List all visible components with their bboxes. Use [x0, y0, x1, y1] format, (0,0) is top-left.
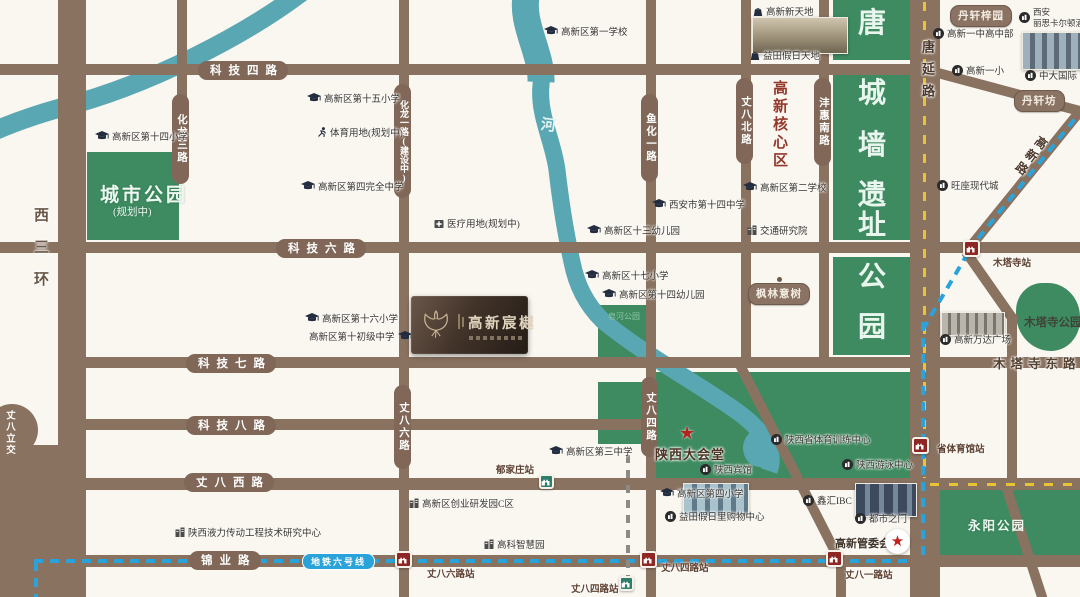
- poi-circle: 陕西游泳中心: [842, 457, 913, 471]
- poi-label: 益田假日里购物中心: [679, 509, 765, 523]
- poi-icon: [743, 182, 757, 192]
- metro-station-icon: [619, 576, 634, 591]
- metro-station-label: 丈八一路站: [845, 567, 893, 581]
- road-label-zhangbalijiao: 丈八立交: [2, 410, 16, 450]
- poi-label: 都市之门: [869, 511, 907, 525]
- river-char: 河: [540, 113, 558, 136]
- tangwall-park-char: 园: [833, 314, 911, 342]
- poi-label: 陕西游泳中心: [856, 457, 913, 471]
- poi-runner: 体育用地(规划中): [317, 125, 403, 139]
- poi-circle: 陕西省体育训练中心: [771, 432, 871, 446]
- poi-label: 陕西省体育训练中心: [785, 432, 871, 446]
- metro-station-label: 丈八四路站: [661, 560, 709, 574]
- poi-school: 高新区第十六小学: [305, 311, 398, 325]
- zhangbaxi-east-lane-dashes: [930, 483, 1080, 486]
- poi-label: 高科智慧园: [497, 537, 545, 551]
- poi-label: 高新区十三幼儿园: [604, 223, 680, 237]
- poi-icon: [409, 498, 419, 508]
- poi-circle: 鑫汇IBC: [803, 493, 852, 507]
- poi-icon: [855, 513, 866, 524]
- poi-school: 高新区第三中学: [549, 444, 633, 458]
- gaoxin-core-label: 高新核心区: [769, 80, 790, 170]
- metro-station-label: 郁家庄站: [496, 462, 534, 476]
- poi-bag: 高新新天地: [753, 4, 814, 18]
- poi-label: 旺座现代城: [951, 178, 999, 192]
- logo-seal-mark: [458, 314, 460, 329]
- poi-label: 高新区第十六小学: [322, 311, 398, 325]
- star-dahuitang-icon: ★: [679, 423, 695, 444]
- poi-label: 高新区创业研发园C区: [422, 496, 514, 510]
- poi-school: 高新区第四小学: [660, 486, 744, 500]
- poi-school: 高新区第十四小学: [95, 129, 188, 143]
- project-logo: 高新宸樾: [411, 296, 528, 354]
- poi-school: 高新区第一学校: [544, 24, 628, 38]
- poi-label: 高新新天地: [766, 4, 814, 18]
- poi-icon: [803, 495, 814, 506]
- poi-icon: [175, 527, 185, 537]
- poi-icon: [301, 181, 315, 191]
- ginkgo-leaf-icon: [419, 309, 453, 341]
- road-label-xisanhuan: 西三环: [30, 207, 51, 303]
- poi-label: 高新区第一学校: [561, 24, 628, 38]
- poi-label: 医疗用地(规划中): [447, 216, 520, 230]
- poi-icon: [700, 464, 711, 475]
- poi-label: 高新区第三中学: [566, 444, 633, 458]
- metro-station-label: 丈八四路站: [571, 581, 619, 595]
- logo-seal-mark: [462, 317, 464, 327]
- compound-badge: 丹轩坊: [1014, 90, 1065, 112]
- poi-icon: [652, 199, 666, 209]
- poi-bag: 益田假日天地: [750, 48, 820, 62]
- poi-label: 高新区第二学校: [760, 180, 827, 194]
- metro-station-label: 木塔寺站: [993, 255, 1031, 269]
- poi-school: 高新区十三幼儿园: [587, 223, 680, 237]
- logo-subtext: [469, 336, 525, 340]
- poi-icon: [940, 334, 951, 345]
- road-label: 丈八西路: [184, 473, 274, 492]
- poi-school: 高新区第四完全中学: [301, 179, 404, 193]
- road-label: 鱼化一路: [641, 94, 658, 182]
- metro6-jinye: [34, 559, 908, 563]
- road-label: 科技四路: [198, 61, 288, 80]
- metro-planned-line: [626, 455, 630, 577]
- metro-station-icon: [963, 240, 980, 257]
- poi-circle: 中大国际: [1025, 68, 1077, 82]
- yongyang-park-label: 永阳公园: [968, 515, 1026, 534]
- metro6-west-turn: [34, 562, 38, 597]
- poi-building: 高新区创业研发园C区: [409, 496, 514, 510]
- tangwall-park-char: 公: [833, 264, 911, 292]
- poi-icon: [317, 127, 327, 137]
- poi-circle: 都市之门: [855, 511, 907, 525]
- poi-building: 交通研究院: [747, 223, 808, 237]
- star-guanweihui-icon: ★: [885, 529, 910, 554]
- metro-station-icon: [912, 437, 929, 454]
- poi-icon: [771, 434, 782, 445]
- tangwall-park-char: 遗: [833, 182, 911, 210]
- poi-icon: [665, 511, 676, 522]
- poi-icon: [660, 488, 674, 498]
- road-label: 沣惠南路: [814, 78, 831, 166]
- poi-circle: 益田假日里购物中心: [665, 509, 765, 523]
- poi-school: 高新区第二学校: [743, 180, 827, 194]
- road-kejisi: [0, 64, 912, 75]
- road-interchange-area: [0, 445, 76, 597]
- poi-label: 高新区第十初级中学: [309, 329, 395, 343]
- poi-icon: [305, 313, 319, 323]
- poi-icon: [602, 289, 616, 299]
- poi-hospital: 医疗用地(规划中): [434, 216, 520, 230]
- tangwall-park-char: 址: [833, 212, 911, 240]
- poi-school: 西安市第十四中学: [652, 197, 745, 211]
- poi-icon: [747, 225, 757, 235]
- road-label: 科技六路: [276, 239, 366, 258]
- poi-label: 高新区第四完全中学: [318, 179, 404, 193]
- poi-label: 高新管委会: [835, 535, 890, 551]
- metro-station-label: 省体育馆站: [937, 441, 985, 455]
- road-label: 锦业路: [189, 551, 261, 570]
- poi-none: 高新管委会: [835, 535, 890, 551]
- metro-station-icon: [395, 551, 412, 568]
- poi-icon: [1019, 12, 1030, 23]
- poi-icon: [398, 331, 412, 341]
- poi-label: 高新一中高中部: [947, 26, 1014, 40]
- poi-label: 陕西大会堂: [655, 444, 725, 463]
- road-kejiba: [58, 419, 657, 430]
- poi-circle: 旺座现代城: [937, 178, 999, 192]
- road-label: 丈八北路: [736, 78, 753, 164]
- city-park-label: 城市公园: [100, 180, 188, 207]
- poi-icon: [95, 131, 109, 141]
- poi-icon: [549, 446, 563, 456]
- poi-label: 高新万达广场: [954, 332, 1011, 346]
- road-label-mutasidonglu: 木塔寺东路: [993, 353, 1080, 372]
- road-label-tangyanlu: 唐延路: [918, 40, 937, 106]
- poi-school: 高新区十七小学: [585, 268, 669, 282]
- building-photo-zhongda: [1022, 32, 1080, 70]
- poi-label: 高新区十七小学: [602, 268, 669, 282]
- metro-station-icon: [640, 551, 657, 568]
- poi-label: 陕西宾馆: [714, 462, 752, 476]
- poi-circle: 高新一小: [952, 63, 1004, 77]
- poi-icon: [937, 180, 948, 191]
- poi-icon: [434, 218, 444, 228]
- poi-school: 高新区第十初级中学: [309, 329, 412, 343]
- poi-label: 高新区第四小学: [677, 486, 744, 500]
- poi-circle: 高新一中高中部: [933, 26, 1014, 40]
- poi-label: 益田假日天地: [763, 48, 820, 62]
- zaohe-park-label: 皂河公园: [608, 311, 640, 322]
- metro-station-icon: [826, 550, 843, 567]
- project-name: 高新宸樾: [468, 312, 536, 333]
- poi-icon: [1025, 70, 1036, 81]
- poi-building: 高科智慧园: [484, 537, 545, 551]
- poi-icon: [952, 65, 963, 76]
- poi-label: 高新区第十四幼儿园: [619, 287, 705, 301]
- poi-none: 陕西大会堂: [655, 444, 725, 463]
- poi-school: 高新区第十四幼儿园: [602, 287, 705, 301]
- location-map: 西三环 唐延路 高新路 木塔寺东路 丈八立交 地铁六号线 城市公园 (规划中) …: [0, 0, 1080, 597]
- poi-label: 西安丽思卡尔顿酒店: [1033, 7, 1080, 28]
- poi-icon: [842, 459, 853, 470]
- city-park-sub: (规划中): [113, 204, 152, 219]
- compound-badge: 丹轩梓园: [950, 5, 1012, 27]
- poi-icon: [307, 93, 321, 103]
- poi-label: 高新区第十四小学: [112, 129, 188, 143]
- metro6-line-badge: 地铁六号线: [302, 553, 375, 570]
- poi-label: 中大国际: [1039, 68, 1077, 82]
- poi-icon: [753, 6, 763, 16]
- compound-badge: 枫林意树: [748, 283, 810, 305]
- poi-label: 高新区第十五小学: [324, 91, 400, 105]
- metro-station-label: 丈八六路站: [427, 566, 475, 580]
- mutasi-park-label: 木塔寺公园: [1024, 314, 1080, 330]
- poi-label: 鑫汇IBC: [817, 493, 852, 507]
- poi-circle: 高新万达广场: [940, 332, 1011, 346]
- poi-label: 高新一小: [966, 63, 1004, 77]
- poi-icon: [750, 50, 760, 60]
- poi-icon: [544, 26, 558, 36]
- poi-label: 交通研究院: [760, 223, 808, 237]
- road-label: 丈八六路: [394, 385, 411, 469]
- poi-label: 陕西液力传动工程技术研究中心: [188, 525, 321, 539]
- tangwall-park-char: 城: [833, 80, 911, 108]
- poi-building: 陕西液力传动工程技术研究中心: [175, 525, 321, 539]
- poi-icon: [933, 28, 944, 39]
- poi-label: 西安市第十四中学: [669, 197, 745, 211]
- poi-icon: [587, 225, 601, 235]
- road-label: 科技八路: [186, 416, 276, 435]
- poi-circle: 陕西宾馆: [700, 462, 752, 476]
- poi-icon: [484, 539, 494, 549]
- poi-circle: 西安丽思卡尔顿酒店: [1019, 7, 1080, 28]
- road-label: 科技七路: [186, 354, 276, 373]
- metro-station-icon: [539, 474, 554, 489]
- tangwall-park-char: 墙: [833, 132, 911, 160]
- poi-icon: [585, 270, 599, 280]
- poi-school: 高新区第十五小学: [307, 91, 400, 105]
- poi-label: 体育用地(规划中): [330, 125, 403, 139]
